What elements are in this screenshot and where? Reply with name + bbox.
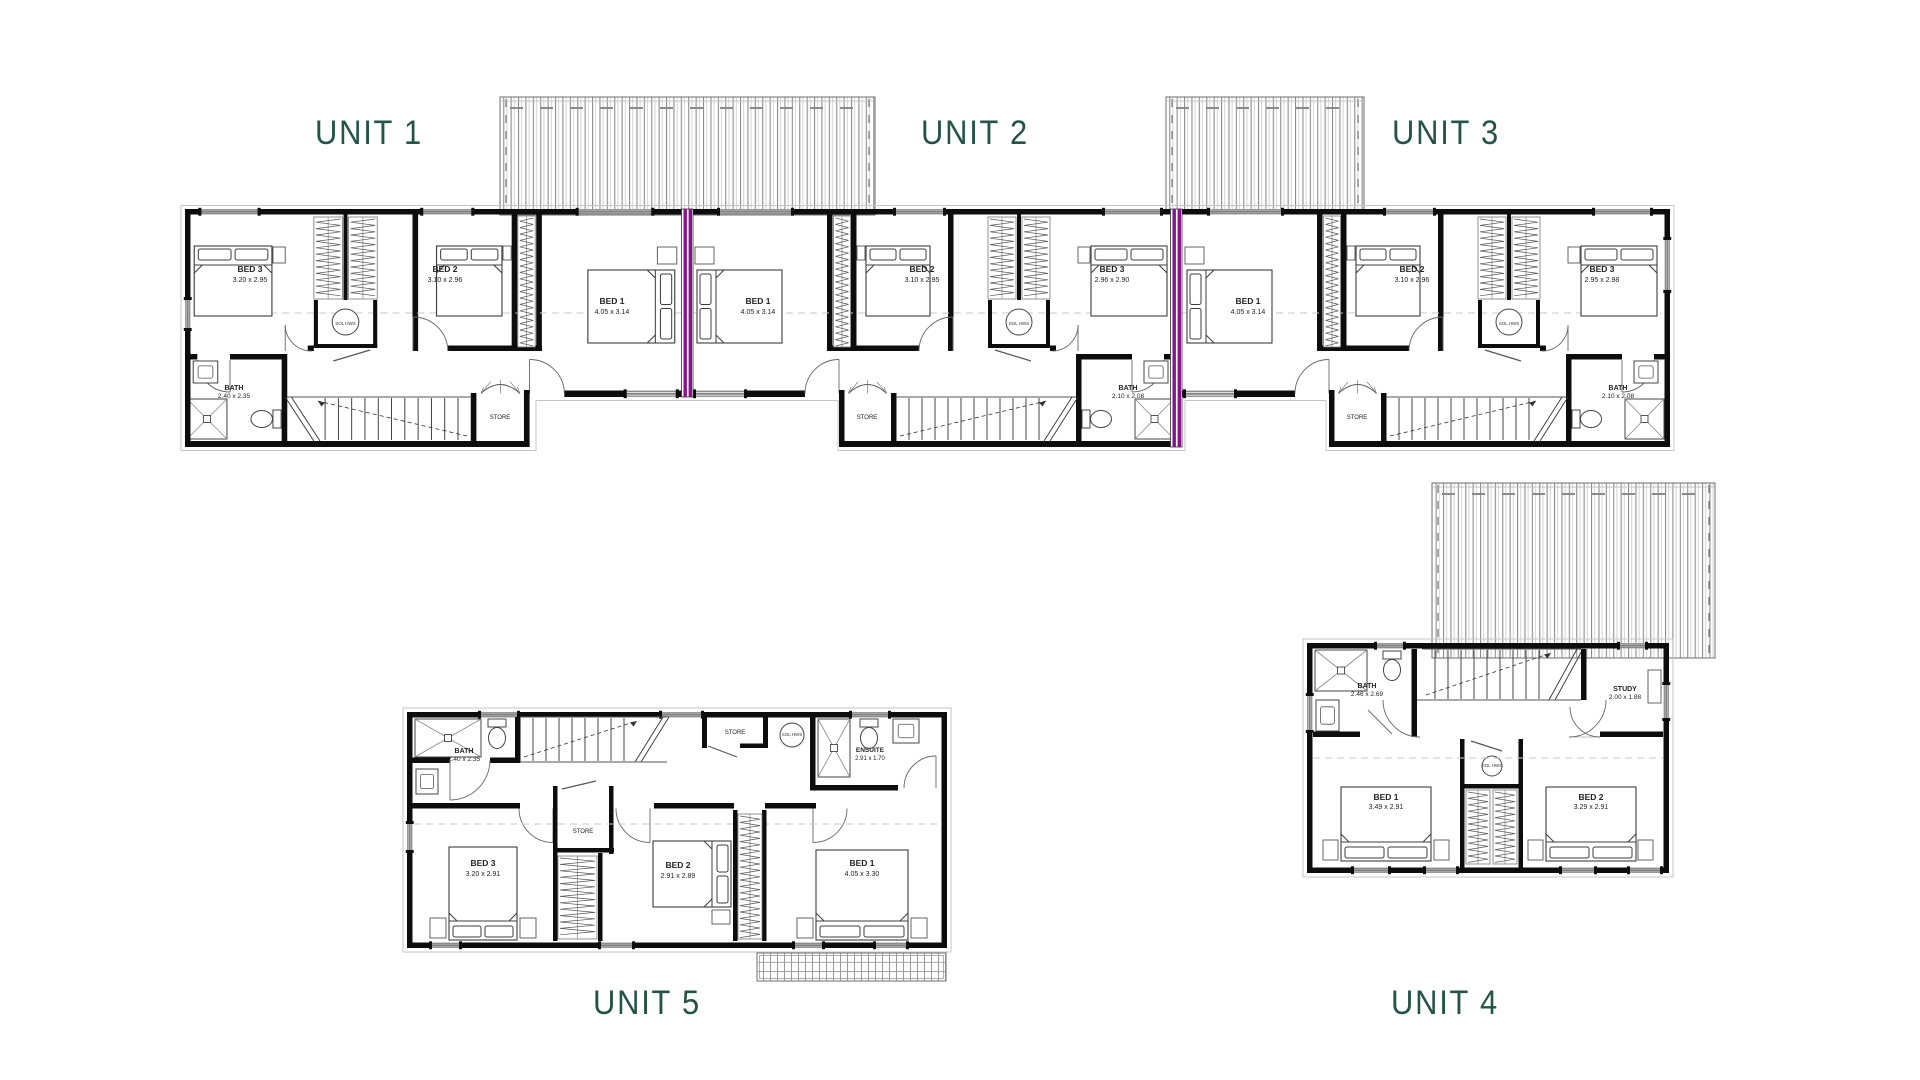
svg-text:3.10 x 2.96: 3.10 x 2.96 bbox=[1395, 277, 1430, 284]
svg-text:SOL HWS: SOL HWS bbox=[782, 732, 803, 737]
svg-text:4.05 x 3.14: 4.05 x 3.14 bbox=[741, 309, 776, 316]
svg-text:BED 2: BED 2 bbox=[432, 264, 457, 274]
svg-text:SOL HWS: SOL HWS bbox=[1482, 763, 1503, 768]
svg-text:BED 2: BED 2 bbox=[1578, 792, 1603, 802]
svg-text:2.96 x 2.90: 2.96 x 2.90 bbox=[1095, 277, 1130, 284]
svg-text:BED 3: BED 3 bbox=[1099, 264, 1124, 274]
svg-text:4.05 x 3.14: 4.05 x 3.14 bbox=[595, 309, 630, 316]
svg-text:BED 3: BED 3 bbox=[1589, 264, 1614, 274]
svg-text:BATH: BATH bbox=[225, 385, 244, 392]
svg-text:2.40 x 2.35: 2.40 x 2.35 bbox=[218, 393, 251, 400]
svg-text:SOL HWS: SOL HWS bbox=[1009, 321, 1030, 326]
svg-text:2.91 x 2.89: 2.91 x 2.89 bbox=[661, 873, 696, 880]
svg-text:2.91 x 1.70: 2.91 x 1.70 bbox=[855, 756, 885, 762]
svg-text:UNIT 3: UNIT 3 bbox=[1392, 114, 1500, 152]
svg-text:SOL HWS: SOL HWS bbox=[1499, 321, 1520, 326]
svg-text:BED 2: BED 2 bbox=[1399, 264, 1424, 274]
svg-text:BED 1: BED 1 bbox=[1235, 296, 1260, 306]
svg-text:3.20 x 2.95: 3.20 x 2.95 bbox=[233, 277, 268, 284]
svg-text:BED 1: BED 1 bbox=[599, 296, 624, 306]
svg-text:BATH: BATH bbox=[1609, 385, 1628, 392]
svg-text:BED 2: BED 2 bbox=[909, 264, 934, 274]
svg-text:BED 1: BED 1 bbox=[745, 296, 770, 306]
svg-text:3.10 x 2.95: 3.10 x 2.95 bbox=[905, 277, 940, 284]
svg-text:UNIT 2: UNIT 2 bbox=[921, 114, 1029, 152]
svg-text:BED 1: BED 1 bbox=[1373, 792, 1398, 802]
svg-text:3.49 x 2.91: 3.49 x 2.91 bbox=[1369, 804, 1404, 811]
svg-text:2.00 x 1.88: 2.00 x 1.88 bbox=[1609, 694, 1642, 701]
svg-text:2.10 x 2.08: 2.10 x 2.08 bbox=[1602, 393, 1635, 400]
svg-text:UNIT 4: UNIT 4 bbox=[1391, 984, 1499, 1022]
svg-text:ENSUITE: ENSUITE bbox=[856, 747, 885, 754]
svg-text:BED 2: BED 2 bbox=[665, 860, 690, 870]
svg-text:STORE: STORE bbox=[725, 730, 746, 736]
svg-text:2.40 x 2.35: 2.40 x 2.35 bbox=[448, 756, 481, 763]
svg-text:STORE: STORE bbox=[1347, 415, 1368, 421]
svg-text:4.05 x 3.14: 4.05 x 3.14 bbox=[1231, 309, 1266, 316]
svg-text:BATH: BATH bbox=[455, 748, 474, 755]
svg-text:2.46 x 2.69: 2.46 x 2.69 bbox=[1351, 691, 1384, 698]
svg-text:STORE: STORE bbox=[857, 415, 878, 421]
svg-text:2.10 x 2.08: 2.10 x 2.08 bbox=[1112, 393, 1145, 400]
svg-text:STORE: STORE bbox=[490, 415, 511, 421]
svg-text:UNIT 5: UNIT 5 bbox=[593, 984, 701, 1022]
svg-text:STORE: STORE bbox=[573, 829, 594, 835]
svg-text:SOL HWS: SOL HWS bbox=[335, 321, 356, 326]
svg-text:BED 1: BED 1 bbox=[849, 858, 874, 868]
svg-text:2.95 x 2.98: 2.95 x 2.98 bbox=[1585, 277, 1620, 284]
svg-text:BATH: BATH bbox=[1119, 385, 1138, 392]
svg-text:BATH: BATH bbox=[1358, 683, 1377, 690]
svg-text:BED 3: BED 3 bbox=[237, 264, 262, 274]
svg-text:UNIT 1: UNIT 1 bbox=[315, 114, 423, 152]
svg-text:3.29 x 2.91: 3.29 x 2.91 bbox=[1574, 804, 1609, 811]
svg-text:4.05 x 3.30: 4.05 x 3.30 bbox=[845, 871, 880, 878]
svg-text:STUDY: STUDY bbox=[1613, 686, 1637, 693]
svg-text:BED 3: BED 3 bbox=[470, 858, 495, 868]
svg-text:3.20 x 2.91: 3.20 x 2.91 bbox=[466, 871, 501, 878]
svg-text:3.10 x 2.96: 3.10 x 2.96 bbox=[428, 277, 463, 284]
